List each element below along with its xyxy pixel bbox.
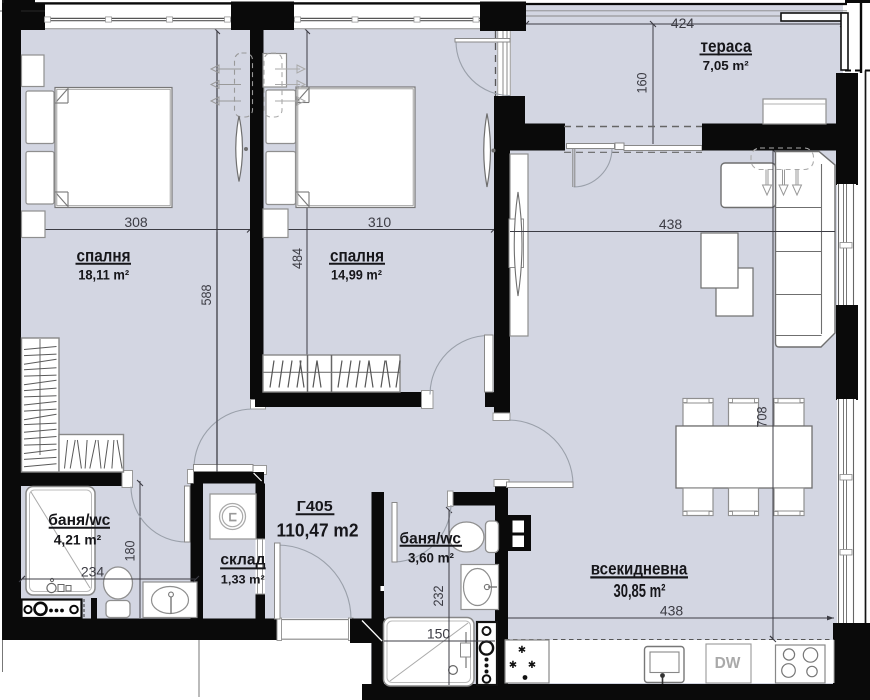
svg-text:708: 708 <box>754 406 770 427</box>
svg-text:484: 484 <box>289 248 305 269</box>
svg-text:310: 310 <box>368 214 392 230</box>
svg-text:588: 588 <box>198 284 214 305</box>
svg-text:спалня: спалня <box>330 246 384 266</box>
svg-text:всекидневна: всекидневна <box>591 559 688 579</box>
svg-text:234: 234 <box>81 564 105 580</box>
svg-text:✱: ✱ <box>518 645 526 656</box>
svg-text:✱: ✱ <box>509 660 517 671</box>
svg-text:30,85 m²: 30,85 m² <box>614 580 666 601</box>
svg-text:спалня: спалня <box>77 246 131 266</box>
svg-text:7,05 m²: 7,05 m² <box>703 58 750 73</box>
svg-text:14,99 m²: 14,99 m² <box>331 268 382 283</box>
svg-text:склад: склад <box>220 552 265 569</box>
svg-text:✱: ✱ <box>528 660 536 671</box>
svg-text:3,60 m²: 3,60 m² <box>408 551 454 566</box>
svg-text:баня/wc: баня/wc <box>400 530 462 547</box>
svg-text:438: 438 <box>660 603 684 619</box>
svg-text:1,33 m²: 1,33 m² <box>221 573 265 587</box>
svg-text:DW: DW <box>715 655 741 672</box>
svg-text:424: 424 <box>671 15 695 31</box>
svg-text:180: 180 <box>122 540 138 561</box>
svg-text:тераса: тераса <box>701 36 752 56</box>
svg-text:150: 150 <box>427 626 451 642</box>
svg-text:160: 160 <box>634 72 650 93</box>
svg-text:438: 438 <box>659 216 683 232</box>
svg-text:232: 232 <box>430 585 446 606</box>
svg-text:18,11 m²: 18,11 m² <box>78 268 129 283</box>
svg-text:Г405: Г405 <box>297 498 333 515</box>
svg-text:308: 308 <box>124 214 148 230</box>
svg-text:4,21 m²: 4,21 m² <box>54 533 102 548</box>
svg-text:баня/wc: баня/wc <box>48 512 110 529</box>
svg-text:110,47 m2: 110,47 m2 <box>277 520 359 541</box>
